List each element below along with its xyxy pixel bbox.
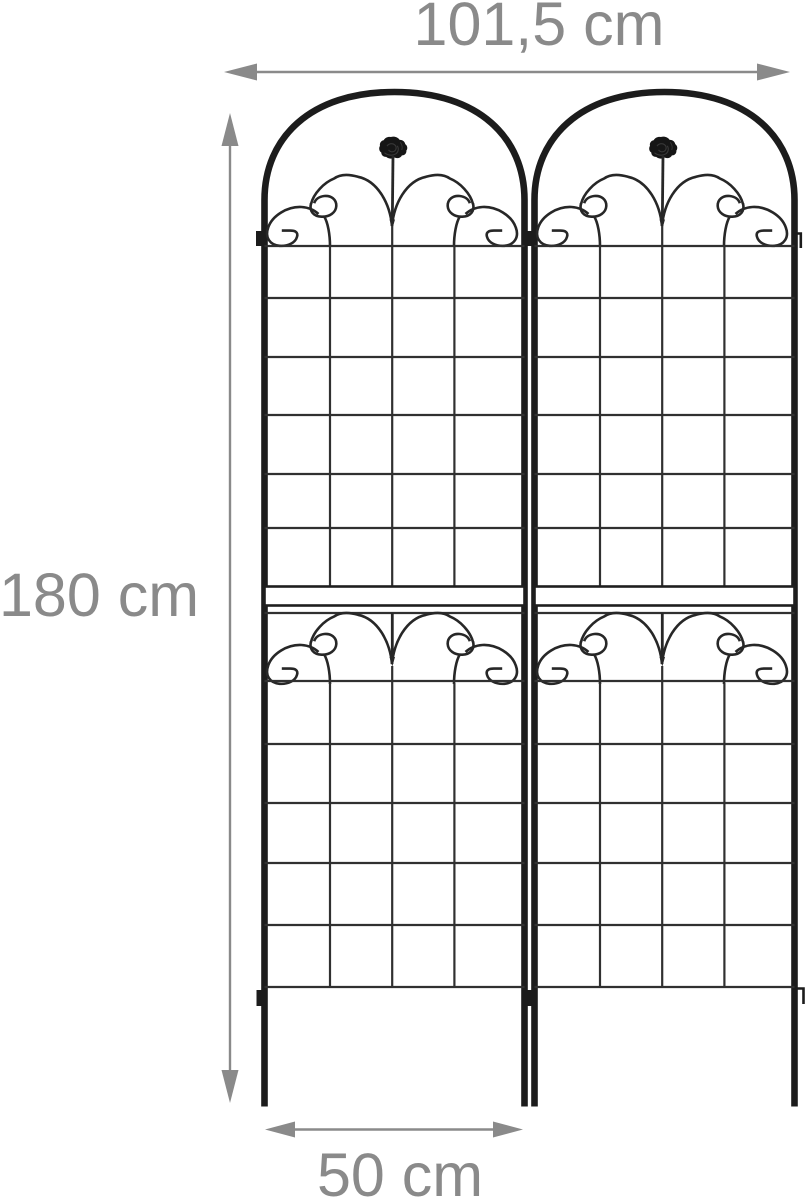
svg-text:180 cm: 180 cm bbox=[0, 561, 199, 629]
svg-text:50 cm: 50 cm bbox=[317, 1141, 483, 1200]
svg-text:101,5 cm: 101,5 cm bbox=[414, 0, 665, 58]
